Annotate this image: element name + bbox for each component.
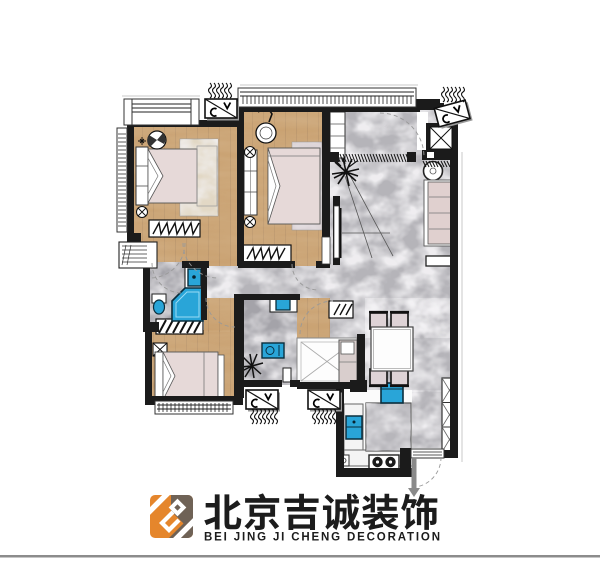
svg-text:BEI JING JI CHENG DECORATION: BEI JING JI CHENG DECORATION	[204, 532, 440, 544]
